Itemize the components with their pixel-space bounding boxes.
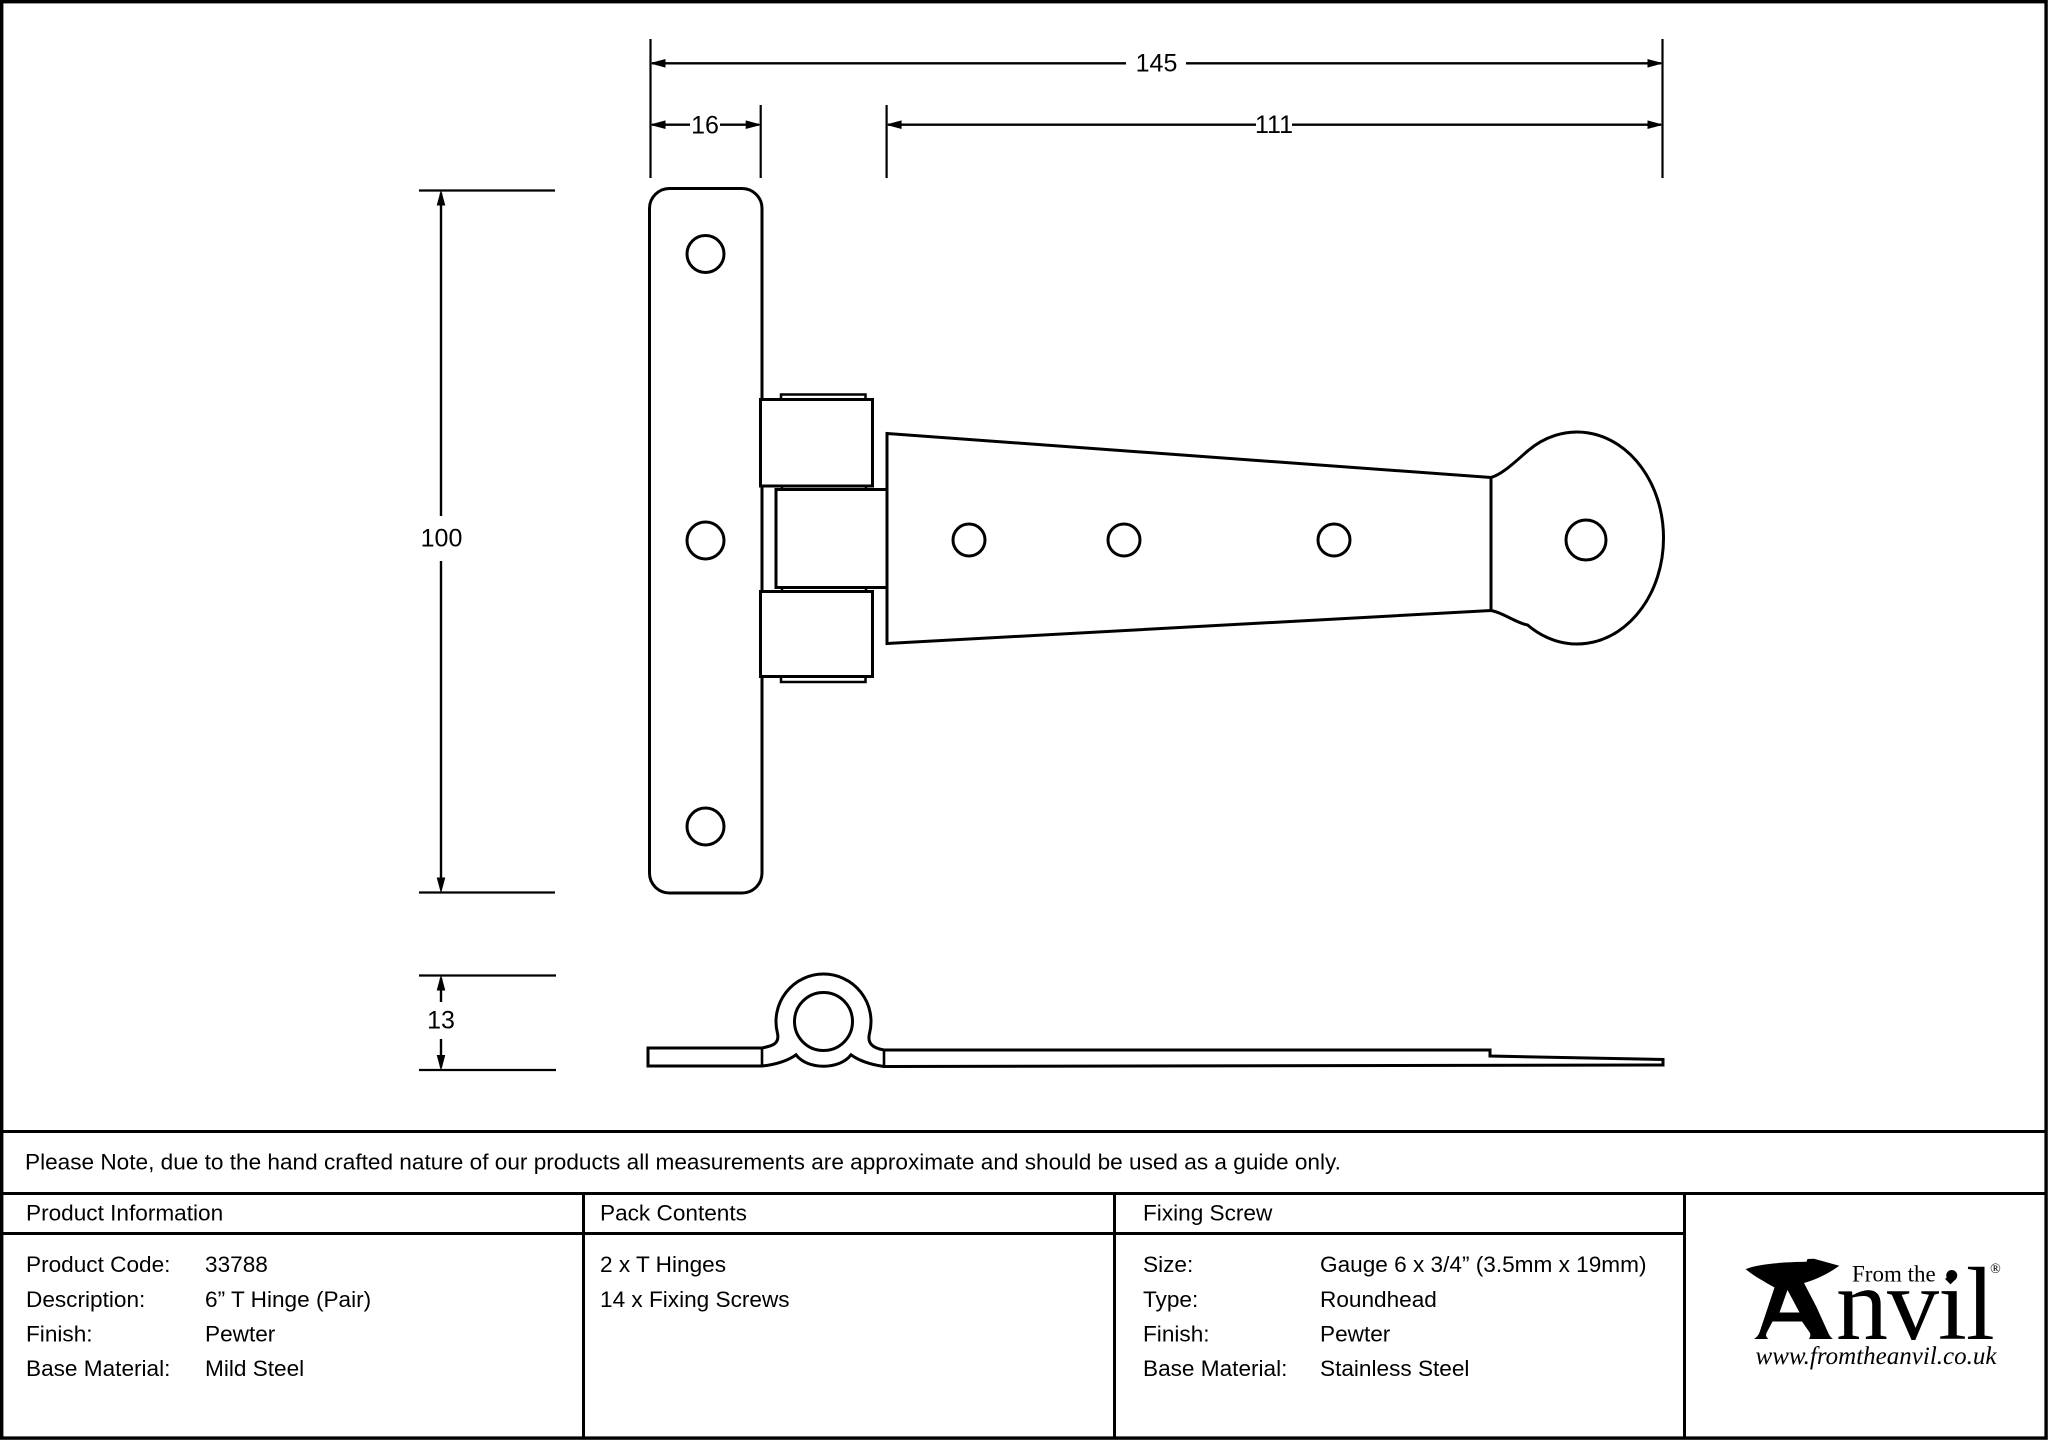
- svg-text:Product Code:: Product Code:: [26, 1252, 170, 1277]
- svg-text:6” T Hinge (Pair): 6” T Hinge (Pair): [205, 1287, 371, 1312]
- svg-text:100: 100: [421, 525, 463, 553]
- svg-text:Stainless Steel: Stainless Steel: [1320, 1356, 1469, 1381]
- svg-text:Roundhead: Roundhead: [1320, 1287, 1437, 1312]
- svg-text:Fixing Screw: Fixing Screw: [1143, 1201, 1273, 1226]
- svg-text:16: 16: [691, 112, 719, 140]
- svg-text:www.fromtheanvil.co.uk: www.fromtheanvil.co.uk: [1756, 1343, 1998, 1370]
- svg-text:Type:: Type:: [1143, 1287, 1198, 1312]
- svg-text:13: 13: [427, 1007, 455, 1035]
- svg-text:Size:: Size:: [1143, 1252, 1193, 1277]
- svg-text:®: ®: [1990, 1262, 2001, 1277]
- svg-text:Gauge 6 x 3/4” (3.5mm x 19mm): Gauge 6 x 3/4” (3.5mm x 19mm): [1320, 1252, 1646, 1277]
- svg-text:2 x T Hinges: 2 x T Hinges: [600, 1252, 726, 1277]
- svg-text:Pewter: Pewter: [1320, 1322, 1391, 1347]
- svg-text:14 x Fixing Screws: 14 x Fixing Screws: [600, 1287, 790, 1312]
- svg-text:Mild Steel: Mild Steel: [205, 1356, 304, 1381]
- svg-text:Finish:: Finish:: [1143, 1322, 1210, 1347]
- svg-text:145: 145: [1136, 50, 1178, 78]
- svg-text:Product Information: Product Information: [26, 1201, 223, 1226]
- svg-text:Pewter: Pewter: [205, 1322, 276, 1347]
- svg-text:33788: 33788: [205, 1252, 268, 1277]
- svg-text:Base Material:: Base Material:: [26, 1356, 170, 1381]
- svg-text:Finish:: Finish:: [26, 1322, 93, 1347]
- svg-text:From the: From the: [1852, 1262, 1936, 1287]
- svg-text:111: 111: [1255, 111, 1293, 139]
- svg-text:Description:: Description:: [26, 1287, 145, 1312]
- svg-text:Base Material:: Base Material:: [1143, 1356, 1287, 1381]
- svg-text:Pack Contents: Pack Contents: [600, 1201, 747, 1226]
- svg-text:Please Note, due to the hand c: Please Note, due to the hand crafted nat…: [25, 1150, 1341, 1175]
